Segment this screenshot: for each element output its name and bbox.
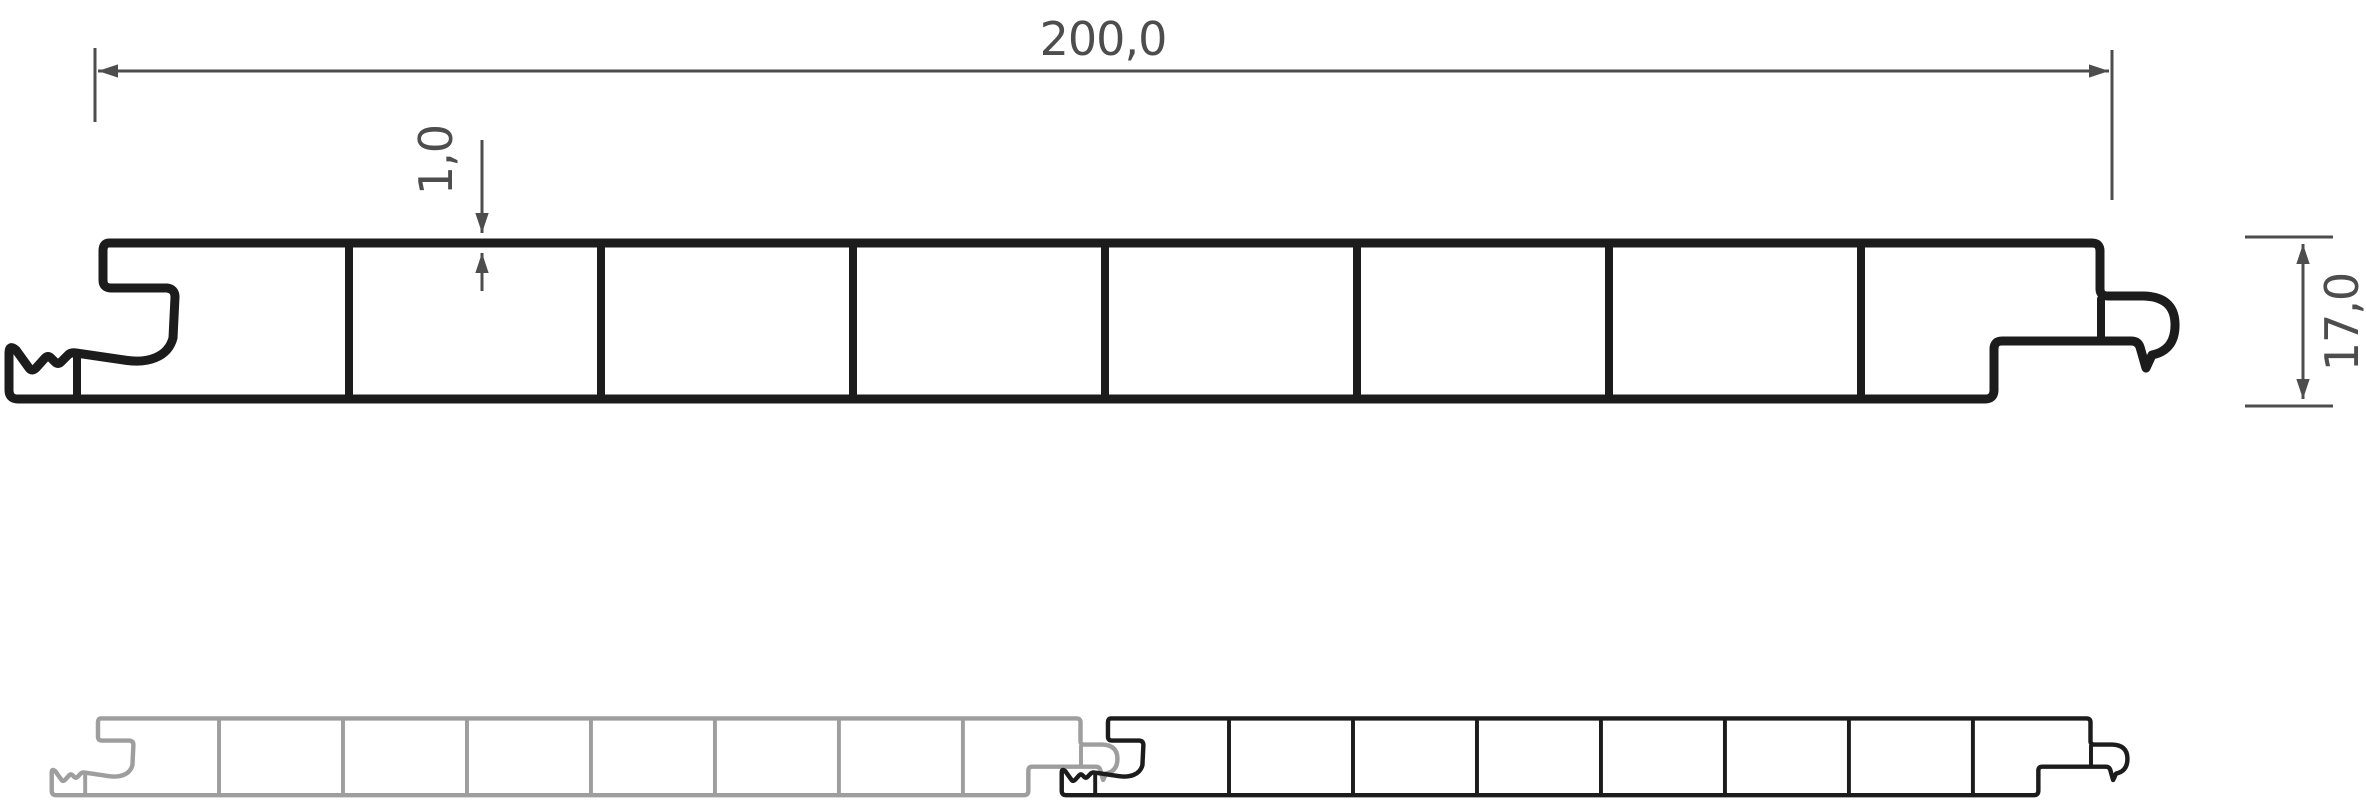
height-dimension-label: 17,0	[2315, 273, 2366, 371]
wall-thickness-dimension-label: 1,0	[409, 125, 463, 195]
main-profile-cross-section	[9, 243, 2175, 399]
width-dimension-label: 200,0	[1040, 12, 1167, 66]
width-dimension	[95, 48, 2112, 200]
assembly-panel-right-black	[1062, 718, 2128, 795]
drawing-page: 200,0 1,0 17,0	[0, 0, 2366, 800]
technical-drawing-canvas: 200,0 1,0 17,0	[0, 0, 2366, 800]
assembly-panel-left-gray	[52, 718, 1118, 795]
